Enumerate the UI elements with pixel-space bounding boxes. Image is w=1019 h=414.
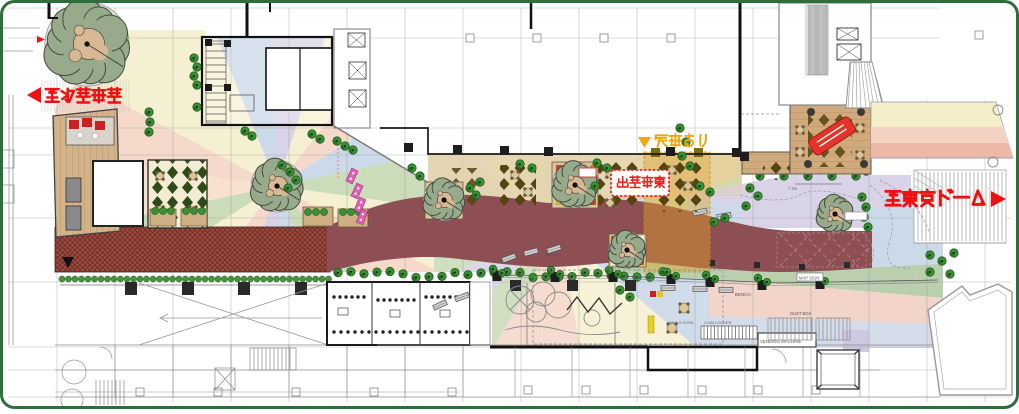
svg-text:7.2m: 7.2m (788, 186, 798, 191)
svg-text:DUST BOX: DUST BOX (588, 212, 609, 217)
svg-text:DUST BOX: DUST BOX (790, 311, 812, 316)
svg-text:BENCH: BENCH (735, 292, 751, 297)
svg-text:SWING SOFA: SWING SOFA (668, 320, 694, 325)
svg-text:COIN LOCKER: COIN LOCKER (704, 320, 732, 325)
svg-text:MAP SIGN: MAP SIGN (799, 276, 819, 281)
svg-text:BENCH: BENCH (545, 252, 561, 257)
